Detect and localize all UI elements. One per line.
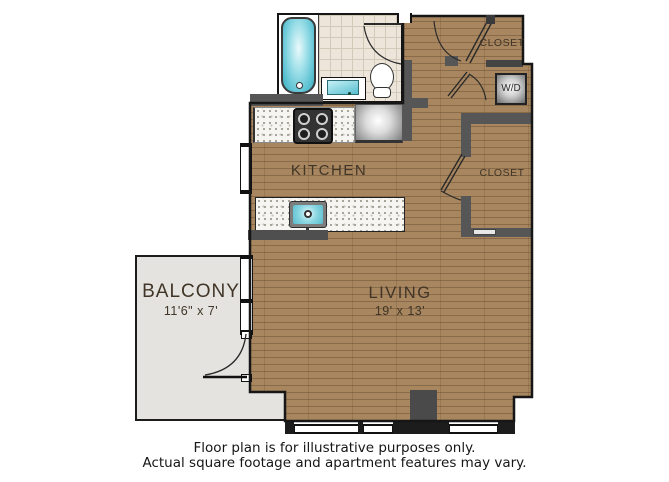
bathroom: [277, 13, 403, 103]
living-label: LIVING: [348, 284, 452, 303]
balcony-door-jamb: [241, 331, 252, 339]
wall-south: [358, 421, 363, 434]
wall-kitchen-north: [402, 98, 428, 108]
kitchen-island-counter: [255, 197, 405, 232]
wall-closet-south: [461, 228, 532, 237]
wall-kitchen-west: [249, 193, 251, 257]
toilet-base-icon: [373, 87, 391, 98]
sink-drain-icon: [348, 92, 351, 95]
burner-icon: [298, 113, 310, 125]
disclaimer: Floor plan is for illustrative purposes …: [0, 441, 669, 470]
washer-dryer-label: W/D: [501, 83, 520, 94]
stove-icon: [293, 108, 333, 144]
kitchen-window: [240, 143, 252, 194]
structural-column: [410, 390, 437, 423]
refrigerator-icon: [355, 104, 403, 143]
burner-icon: [316, 128, 328, 140]
wall-closet-upper: [486, 60, 523, 67]
bathroom-vanity: [321, 77, 366, 100]
kitchen-sink-icon: [289, 201, 327, 228]
disclaimer-line-1: Floor plan is for illustrative purposes …: [0, 441, 669, 456]
disclaimer-line-2: Actual square footage and apartment feat…: [0, 456, 669, 471]
wall-south: [285, 421, 294, 434]
lower-closet-label: CLOSET: [477, 167, 527, 179]
balcony-dimensions: 11'6" x 7': [134, 304, 248, 318]
sink-drain-icon: [304, 210, 312, 218]
living-window: [362, 424, 394, 434]
wall-closet-west-upper: [461, 113, 471, 157]
balcony-label: BALCONY: [134, 281, 248, 303]
kitchen-label: KITCHEN: [269, 162, 389, 179]
balcony-door-jamb: [241, 374, 252, 382]
burner-icon: [316, 113, 328, 125]
wall-entry-stub: [445, 56, 458, 66]
closet-vent: [473, 229, 496, 235]
island-wall-edge: [248, 230, 328, 240]
living-window: [448, 424, 499, 434]
wall-south: [498, 421, 515, 434]
upper-closet-label: CLOSET: [477, 37, 527, 49]
living-dimensions: 19' x 13': [348, 304, 452, 318]
burner-icon: [298, 128, 310, 140]
floor-plan: W/D KITCHEN LIVING 19' x 13' BALCONY 11'…: [0, 0, 669, 482]
bathroom-door-opening: [397, 13, 412, 23]
bathroom-sink-icon: [327, 80, 359, 95]
tub-drain-icon: [296, 82, 303, 89]
wall-laundry-south: [461, 113, 532, 124]
bathtub-icon: [281, 17, 316, 94]
washer-dryer-unit: W/D: [495, 73, 527, 105]
window-mullion: [241, 255, 252, 259]
living-window: [293, 424, 360, 434]
wall-bathroom-south: [250, 94, 323, 106]
wall-south: [393, 421, 449, 434]
